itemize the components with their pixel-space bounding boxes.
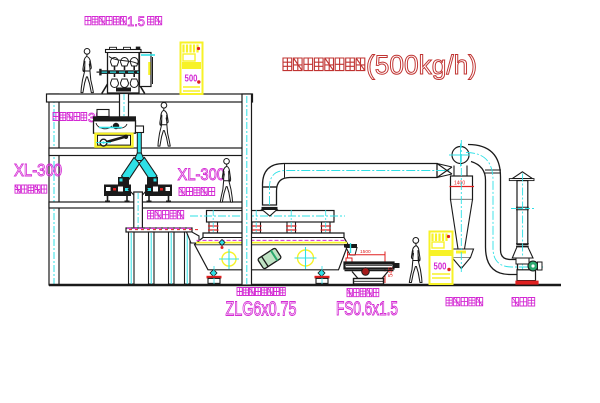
svg-text:500: 500: [434, 262, 447, 273]
svg-text:1.5: 1.5: [127, 13, 145, 29]
svg-text:500: 500: [185, 74, 198, 85]
svg-text:1400: 1400: [454, 181, 465, 187]
svg-text:XL-300: XL-300: [178, 165, 226, 184]
svg-text:FS0.6x1.5: FS0.6x1.5: [336, 298, 398, 320]
svg-text:ZLG6x0.75: ZLG6x0.75: [226, 299, 297, 321]
svg-text:540: 540: [389, 266, 395, 277]
svg-text:XL-300: XL-300: [14, 160, 62, 180]
svg-text:(500kg/h): (500kg/h): [366, 50, 477, 80]
svg-text:1500: 1500: [360, 249, 371, 255]
